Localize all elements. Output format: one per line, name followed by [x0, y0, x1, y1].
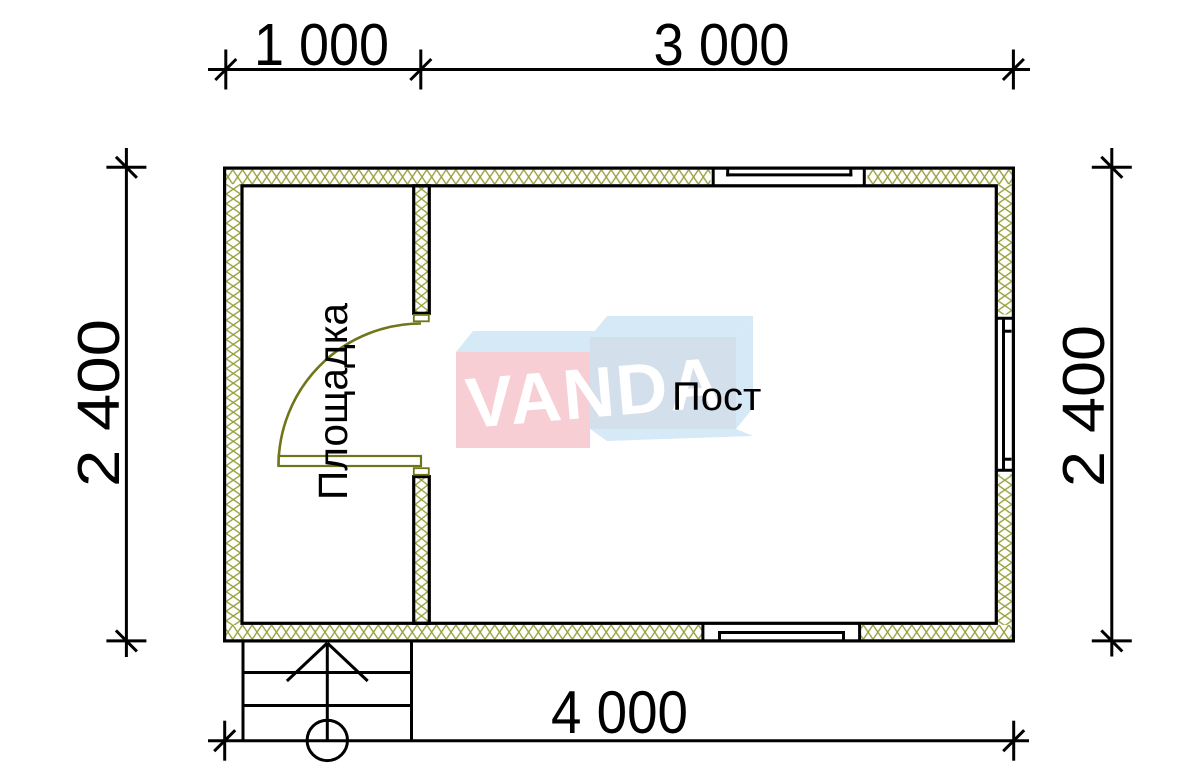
- svg-text:4 000: 4 000: [551, 679, 688, 746]
- svg-text:2 400: 2 400: [66, 319, 132, 487]
- svg-text:Площадка: Площадка: [310, 303, 356, 500]
- svg-text:2 400: 2 400: [1051, 325, 1117, 487]
- svg-text:1 000: 1 000: [254, 12, 389, 78]
- svg-text:3 000: 3 000: [654, 12, 790, 78]
- svg-text:Пост: Пост: [672, 375, 761, 419]
